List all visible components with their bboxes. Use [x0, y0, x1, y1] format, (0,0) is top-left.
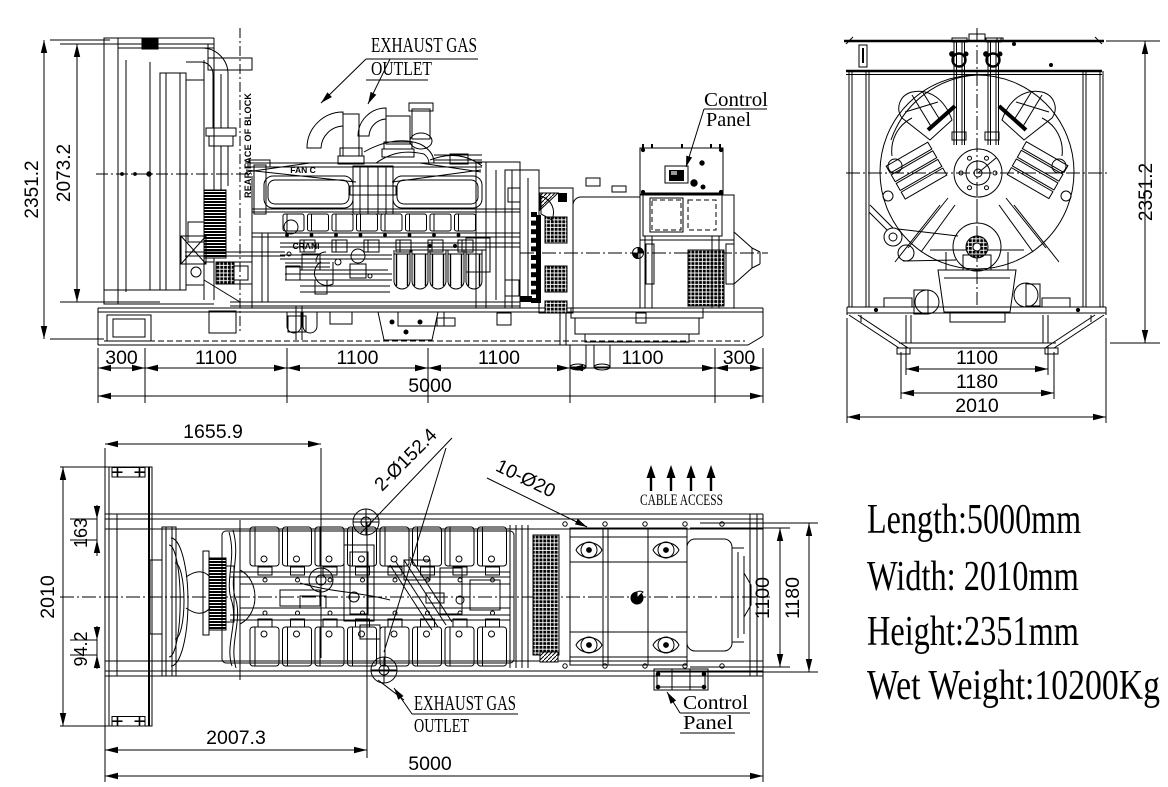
svg-text:300: 300 [723, 347, 756, 369]
svg-text:2010: 2010 [955, 395, 999, 417]
svg-text:2073.2: 2073.2 [54, 144, 75, 202]
svg-text:1180: 1180 [782, 577, 804, 619]
svg-text:Control: Control [683, 692, 748, 714]
svg-text:Height:2351mm: Height:2351mm [867, 609, 1079, 655]
svg-text:Wet Weight:10200Kg: Wet Weight:10200Kg [867, 663, 1160, 709]
svg-text:2007.3: 2007.3 [206, 727, 266, 749]
svg-text:Panel: Panel [706, 109, 751, 131]
svg-text:OUTLET: OUTLET [371, 58, 432, 80]
svg-text:FAN C: FAN C [290, 165, 316, 175]
svg-text:1100: 1100 [622, 347, 664, 369]
svg-text:Control: Control [704, 89, 768, 111]
svg-text:1100: 1100 [195, 347, 237, 369]
svg-text:1100: 1100 [337, 347, 379, 369]
svg-text:2010: 2010 [37, 575, 59, 619]
svg-text:1100: 1100 [956, 347, 998, 369]
svg-text:5000: 5000 [408, 375, 452, 397]
svg-text:2351.2: 2351.2 [1136, 163, 1157, 221]
svg-text:CABLE ACCESS: CABLE ACCESS [640, 492, 723, 509]
svg-text:300: 300 [105, 347, 138, 369]
svg-text:94.2: 94.2 [71, 631, 91, 666]
svg-text:1655.9: 1655.9 [183, 421, 243, 443]
svg-text:OUTLET: OUTLET [414, 715, 469, 737]
svg-text:1180: 1180 [956, 371, 998, 393]
svg-text:Length:5000mm: Length:5000mm [867, 497, 1081, 543]
svg-text:1100: 1100 [478, 347, 520, 369]
svg-text:163: 163 [71, 518, 91, 548]
svg-text:2351.2: 2351.2 [22, 160, 43, 218]
svg-text:5000: 5000 [408, 753, 452, 775]
svg-text:1100: 1100 [752, 577, 774, 619]
svg-text:EXHAUST GAS: EXHAUST GAS [371, 33, 477, 57]
svg-text:EXHAUST GAS: EXHAUST GAS [414, 691, 516, 715]
svg-text:Panel: Panel [683, 712, 733, 734]
svg-text:Width: 2010mm: Width: 2010mm [867, 554, 1079, 600]
